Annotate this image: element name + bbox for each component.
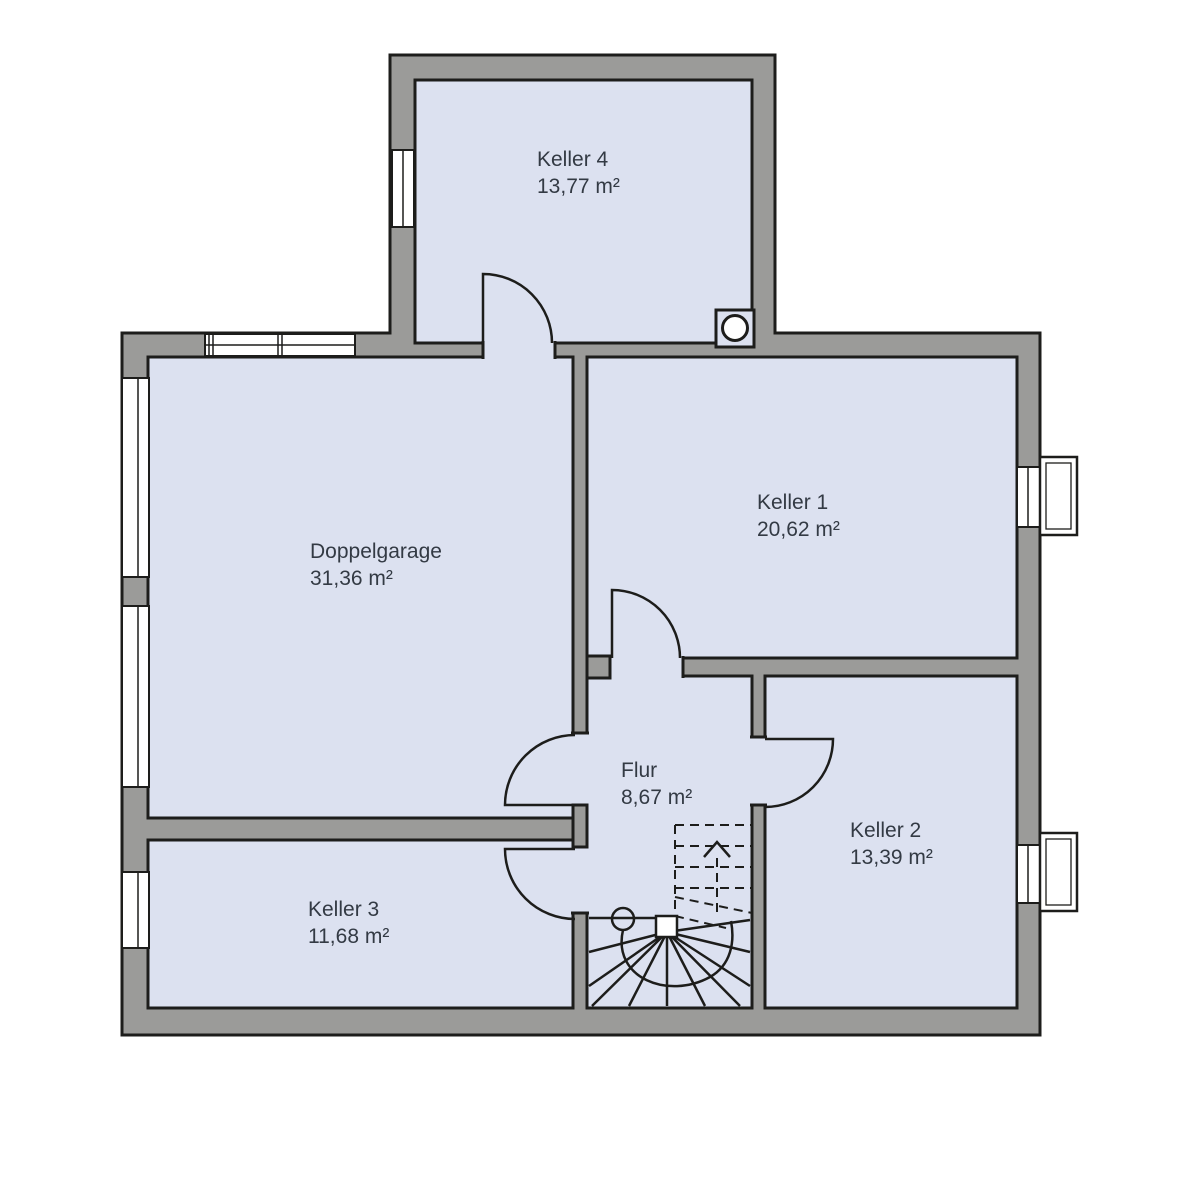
room-keller3-floor — [148, 840, 573, 1008]
opening-keller1-door — [610, 656, 683, 678]
wall-cap-flur-left — [573, 805, 587, 847]
light-well-keller2 — [1040, 833, 1077, 911]
window-keller4-left — [392, 150, 414, 227]
wall-stub-keller1-door — [587, 656, 610, 678]
label-keller2-area: 13,39 m² — [850, 846, 933, 869]
floor-plan-drawing: Keller 4 13,77 m² Doppelgarage 31,36 m² … — [0, 0, 1200, 1200]
window-garage-left-lower — [122, 606, 149, 787]
label-keller1-area: 20,62 m² — [757, 518, 840, 541]
window-keller2-right — [1017, 845, 1040, 903]
label-keller4-name: Keller 4 — [537, 148, 609, 171]
label-keller1-name: Keller 1 — [757, 491, 828, 514]
stair-newel-post — [656, 916, 677, 937]
label-keller3-area: 11,68 m² — [308, 925, 389, 948]
garage-door-symbol — [205, 334, 355, 356]
label-flur-name: Flur — [621, 759, 657, 782]
room-keller4-floor — [415, 80, 752, 343]
label-doppelgarage-area: 31,36 m² — [310, 567, 393, 590]
light-well-keller1 — [1040, 457, 1077, 535]
window-keller3-left — [122, 872, 149, 948]
opening-garage-flur-door — [571, 733, 589, 805]
chimney-circle-icon — [723, 316, 748, 341]
floor-plan-page: Keller 4 13,77 m² Doppelgarage 31,36 m² … — [0, 0, 1200, 1200]
room-keller2-floor — [765, 676, 1017, 1008]
label-flur-area: 8,67 m² — [621, 786, 692, 809]
label-keller3-name: Keller 3 — [308, 898, 379, 921]
light-wells — [1040, 457, 1077, 911]
label-keller2-name: Keller 2 — [850, 819, 921, 842]
opening-keller3-door — [571, 847, 589, 913]
opening-keller2-door — [750, 737, 767, 805]
opening-keller4-door — [483, 341, 555, 359]
chimney-symbol — [716, 310, 754, 347]
window-keller1-right — [1017, 467, 1040, 527]
window-garage-left-upper — [122, 378, 149, 577]
label-doppelgarage-name: Doppelgarage — [310, 540, 442, 563]
label-keller4-area: 13,77 m² — [537, 175, 620, 198]
